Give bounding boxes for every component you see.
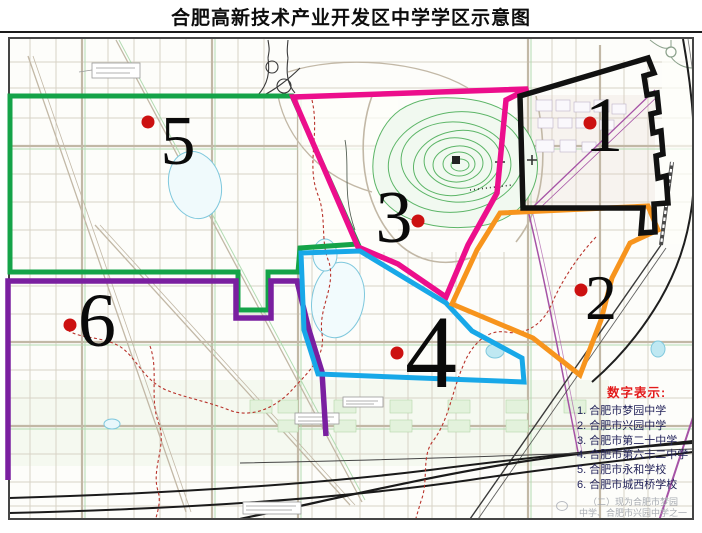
school-dot-5 [142,116,155,129]
school-dot-3 [412,215,425,228]
legend-title: 数字表示: [607,382,699,401]
legend-item-2: 2. 合肥市兴园中学 [577,419,699,434]
legend-item-6: 6. 合肥市城西桥学校 [577,478,699,493]
district-6-number: 6 [78,279,116,363]
watermark: （二）现为合肥市梦园 中学、合肥市兴园中学之一 [568,497,698,518]
school-dot-2 [575,284,588,297]
map-label-box [243,502,301,514]
legend-item-5: 5. 合肥市永和学校 [577,463,699,478]
map-label-box [295,413,339,424]
map-label-box [343,397,383,407]
district-4-number: 4 [405,295,457,410]
legend-item-4: 4. 合肥市第六十二中学 [577,448,699,463]
legend-item-1: 1. 合肥市梦园中学 [577,404,699,419]
district-3-number: 3 [376,177,413,259]
district-2-number: 2 [585,262,617,333]
school-dot-4 [391,347,404,360]
watermark-line-2: 中学、合肥市兴园中学之一 [568,508,698,519]
legend-item-3: 3. 合肥市第二十中学 [577,434,699,449]
school-dot-6 [64,319,77,332]
district-5-number: 5 [161,103,196,180]
watermark-doodle [556,501,568,511]
school-dot-1 [584,117,597,130]
hill-summit-marker [452,156,460,164]
watermark-line-1: （二）现为合肥市梦园 [568,497,698,508]
legend: 数字表示: 1. 合肥市梦园中学 2. 合肥市兴园中学 3. 合肥市第二十中学 … [577,382,699,493]
